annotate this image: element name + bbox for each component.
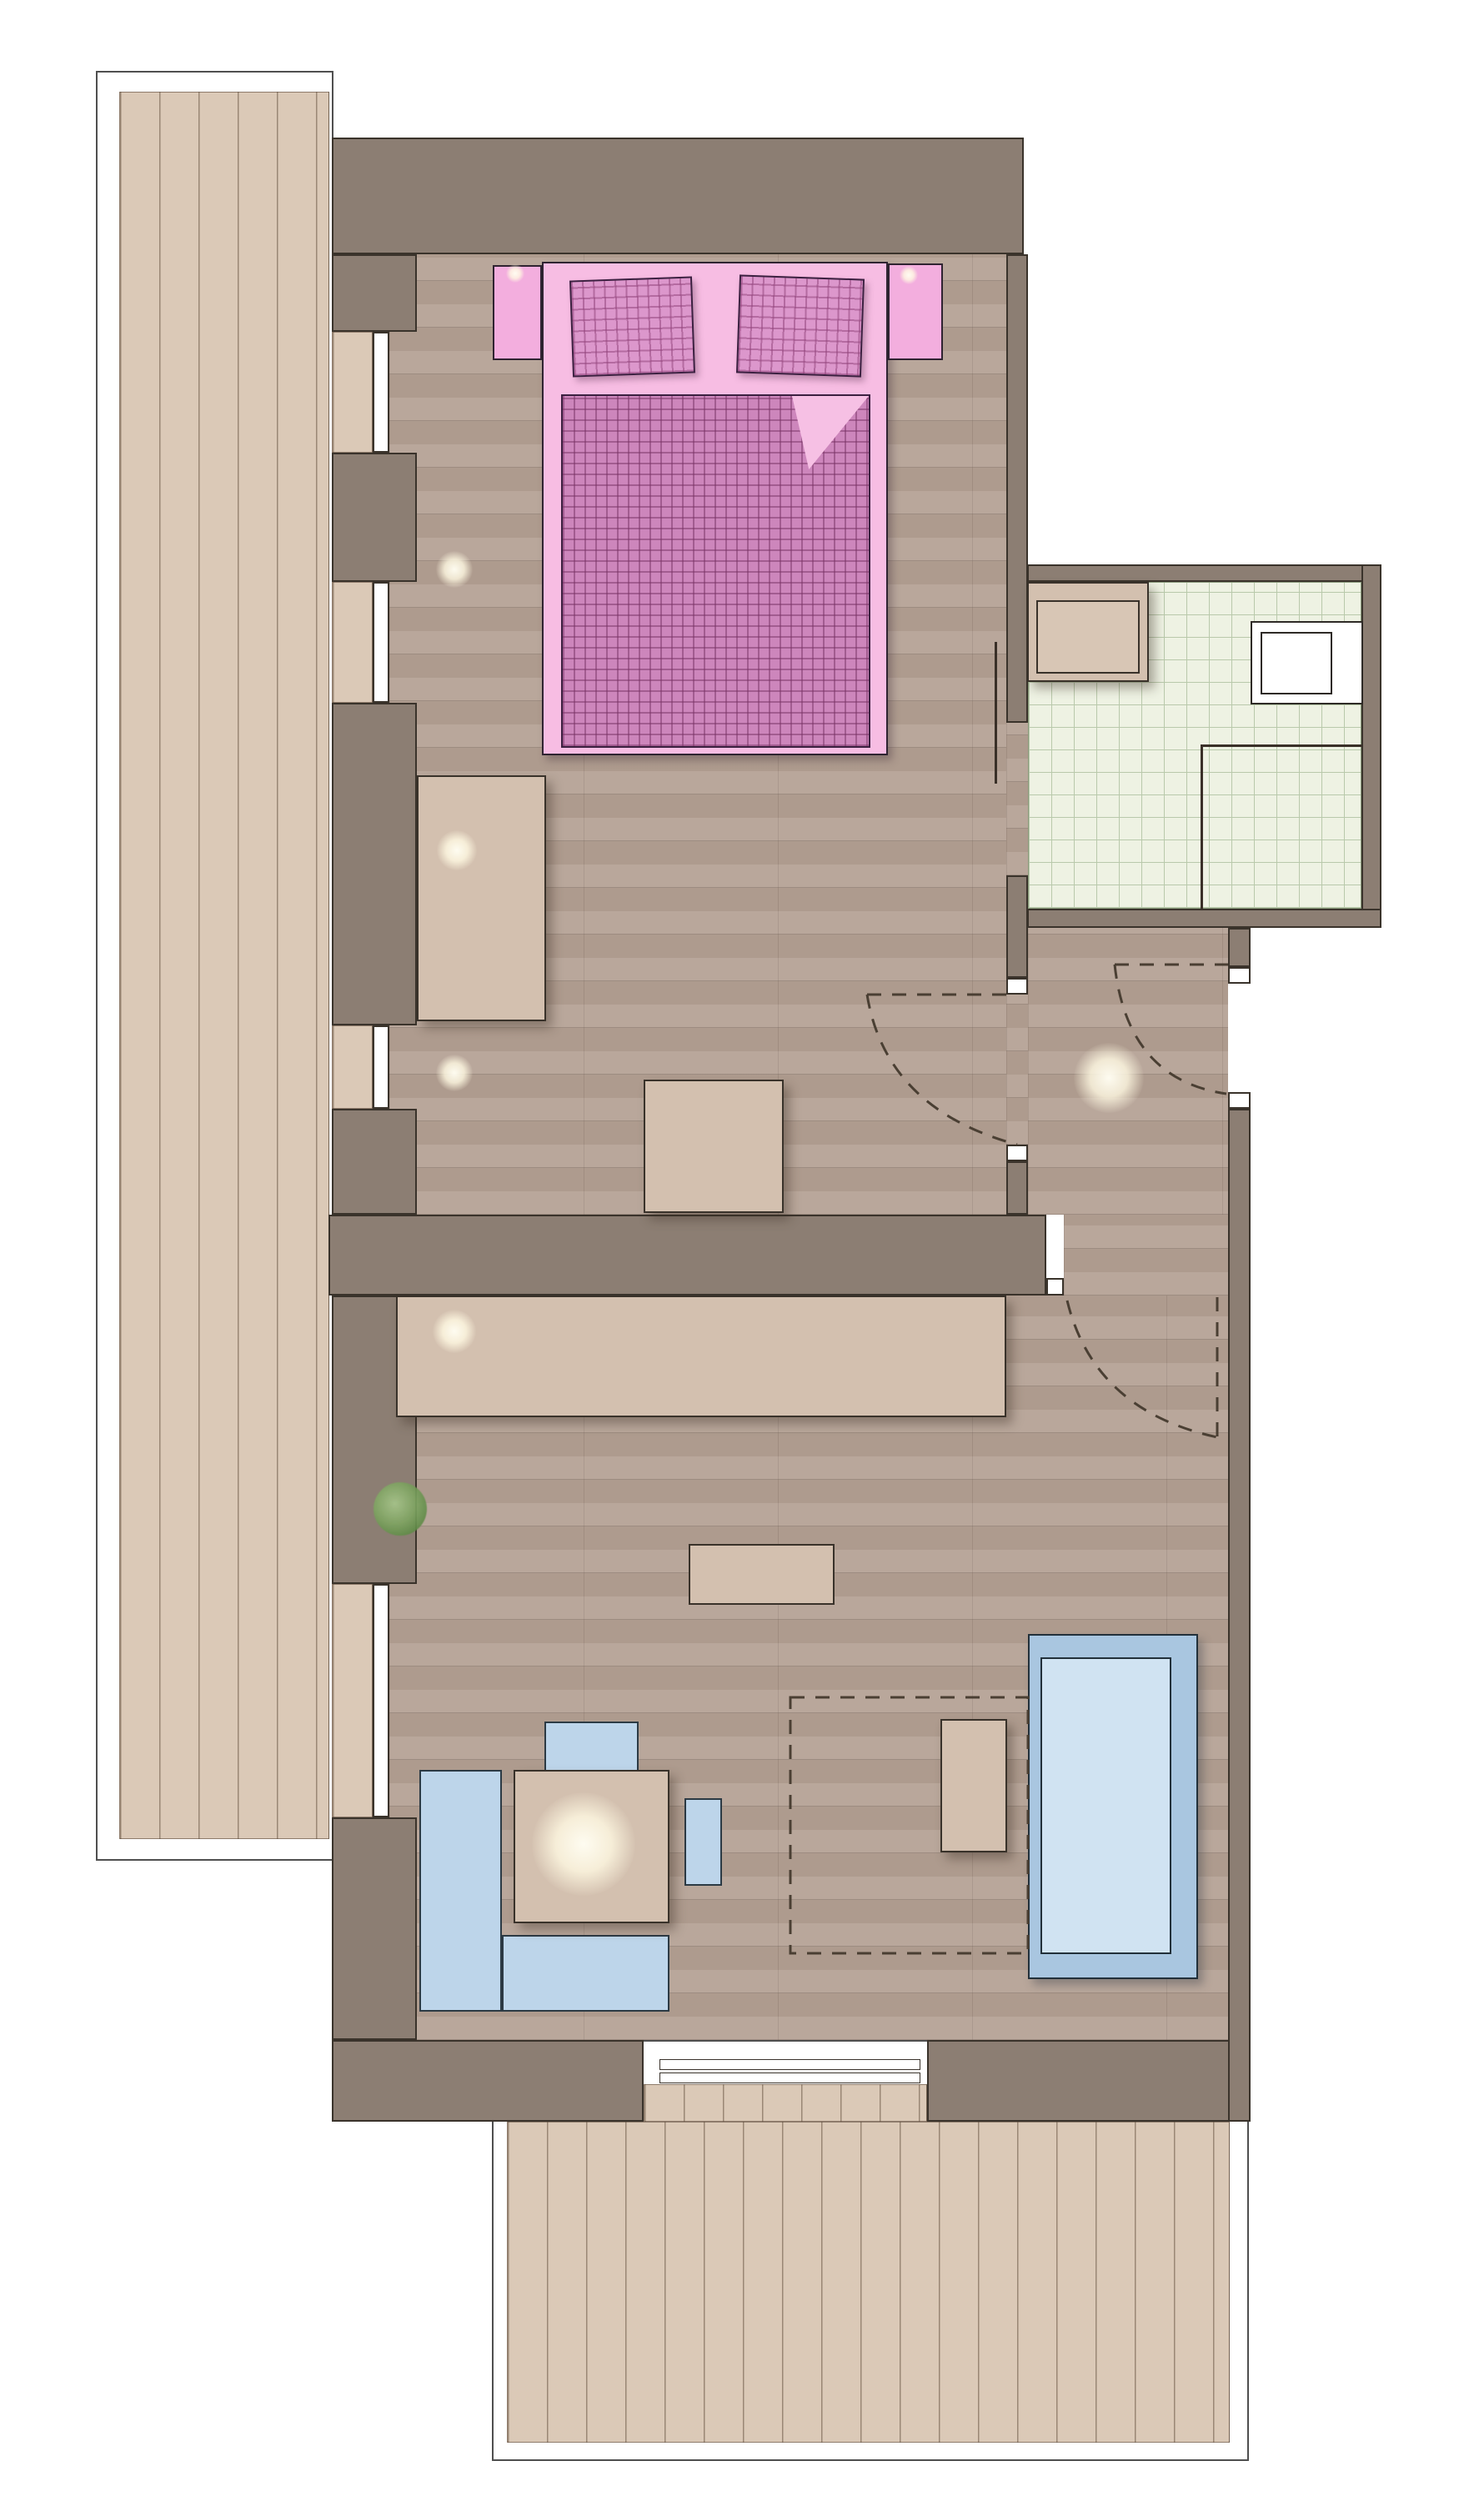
ceiling-light-bedroom-1: [436, 551, 473, 588]
spot-nightstand-left: [506, 264, 524, 283]
ceiling-light-dresser: [437, 830, 477, 870]
stool-right: [684, 1798, 722, 1886]
jamb-living-door: [1046, 1278, 1064, 1296]
potted-plant: [374, 1482, 427, 1536]
window-3-glazing: [373, 1025, 389, 1109]
terrace-deck-planks: [507, 2122, 1230, 2443]
ceiling-light-coffee-table: [532, 1792, 635, 1896]
shower-screen-vertical: [1201, 744, 1203, 909]
ceiling-light-wardrobe: [433, 1310, 476, 1353]
wall-bottom-left: [332, 2040, 644, 2122]
jamb-entry-bottom: [1228, 1092, 1251, 1109]
window-2-glazing: [373, 582, 389, 703]
media-table: [689, 1544, 835, 1605]
wall-right-entry-upper: [1228, 928, 1251, 967]
shower-screen-horizontal: [1201, 744, 1361, 747]
pillow-right: [736, 274, 865, 377]
window-1-glazing: [373, 332, 389, 453]
jamb-beddoor-bottom: [1006, 1145, 1028, 1161]
pillow-left: [569, 276, 695, 377]
wall-bedroom-right-lower: [1006, 875, 1028, 978]
wall-bathroom-bottom: [1027, 909, 1381, 928]
spot-nightstand-right: [900, 266, 918, 284]
living-door-floor: [1064, 1215, 1228, 1296]
wall-interior-band: [328, 1215, 1046, 1296]
wall-top: [332, 138, 1024, 254]
terrace-sliding-door-leaf-1: [659, 2059, 920, 2070]
toilet-bowl: [1261, 632, 1332, 694]
bathroom-door-floor: [1006, 723, 1028, 875]
wall-left-segment-d: [332, 1109, 417, 1215]
wall-left-segment-a: [332, 254, 417, 332]
wall-bedroom-door-stub: [1006, 1161, 1028, 1215]
jamb-bathdoor-top: [1006, 978, 1028, 995]
side-table: [940, 1719, 1007, 1852]
vanity-basin: [1036, 600, 1140, 674]
bedroom-door-floor: [1006, 995, 1028, 1145]
window-3-sill: [332, 1025, 373, 1109]
balcony-deck-planks: [119, 92, 329, 1839]
armchair-top: [544, 1722, 639, 1772]
window-2-sill: [332, 582, 373, 703]
wall-living-left-lower: [332, 1817, 417, 2040]
wall-right-long: [1228, 1109, 1251, 2122]
jamb-entry-top: [1228, 967, 1251, 984]
wall-left-segment-c: [332, 703, 417, 1025]
ceiling-light-bedroom-2: [436, 1055, 473, 1091]
window-4-sill: [332, 1584, 373, 1817]
wall-bathroom-right: [1361, 564, 1381, 928]
sofa-bottom: [502, 1935, 669, 2012]
window-4-glazing: [373, 1584, 389, 1817]
wall-bedroom-right-upper: [1006, 254, 1028, 723]
wall-bottom-right: [927, 2040, 1230, 2122]
bathroom-sliding-door-leaf: [995, 642, 997, 784]
ceiling-light-hallway: [1074, 1043, 1144, 1113]
wall-left-segment-b: [332, 453, 417, 582]
terrace-door-threshold: [644, 2084, 927, 2122]
dresser-bedroom: [417, 775, 546, 1021]
sofa-left: [419, 1770, 502, 2012]
floor-plan: [0, 0, 1484, 2501]
terrace-sliding-door-leaf-2: [659, 2072, 920, 2083]
daybed-cushion: [1040, 1657, 1171, 1954]
wardrobe-sideboard: [396, 1296, 1006, 1417]
wall-bathroom-top: [1027, 564, 1381, 582]
chest-bedroom: [644, 1080, 784, 1213]
window-1-sill: [332, 332, 373, 453]
entry-door-opening: [1228, 984, 1251, 1092]
